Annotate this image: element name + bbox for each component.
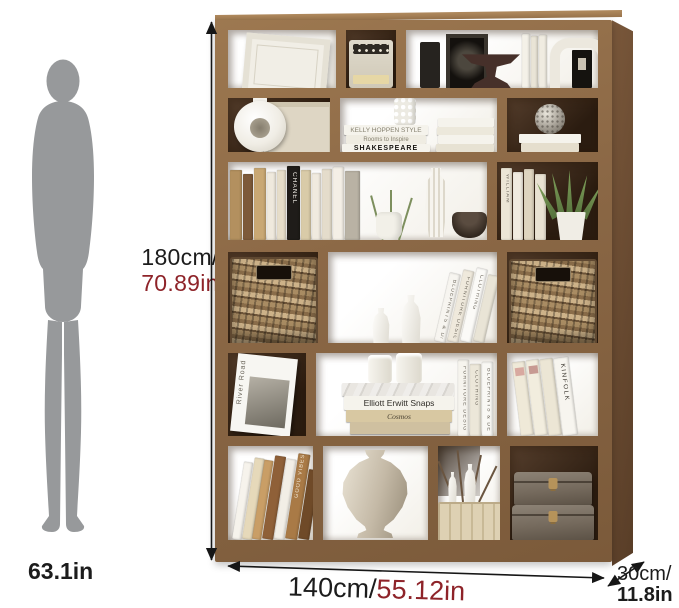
- dark-bowl: [452, 212, 487, 238]
- pillar-candle: [396, 353, 422, 383]
- book-furniture-title: FURNITURE DESIGN: [461, 366, 467, 431]
- book-spine: [301, 170, 311, 240]
- cubby-r5c2: Elliott Erwitt Snaps Cosmos FURNITURE DE…: [316, 353, 497, 436]
- aloe-pot: [555, 212, 587, 240]
- cubby-r3c2: WILLIAM: [497, 162, 598, 240]
- cubby-r3c1: CHANEL: [228, 162, 487, 240]
- shelf-side-panel: [612, 17, 633, 566]
- book-shakespeare: SHAKESPEARE: [342, 144, 430, 152]
- book-clothing: CLOTHING: [470, 364, 481, 436]
- book-label: [528, 365, 538, 374]
- book-spine: [312, 173, 321, 240]
- urn-vase: [339, 450, 411, 538]
- book-spine: [277, 170, 286, 240]
- width-cm-text: 140cm/: [288, 572, 377, 604]
- book-spine: [230, 170, 242, 240]
- cubby-r6c1: GOOD VIBES: [228, 446, 313, 540]
- plant-sprig: [368, 166, 412, 240]
- book-william-title: WILLIAM: [504, 174, 510, 204]
- box-clasp: [549, 478, 558, 489]
- cubby-r5c1: River Road: [228, 353, 306, 436]
- black-perfume-box: [572, 50, 592, 88]
- book-blueprints-title: BLUEPRINTS & DESIGNS: [485, 368, 491, 432]
- person-silhouette: [8, 54, 120, 554]
- cubby-r6c4: [510, 446, 598, 540]
- book-spine: [539, 35, 547, 88]
- width-in-text: 55.12in: [376, 574, 465, 606]
- book-spine: [524, 169, 534, 240]
- perfume-label: [578, 58, 586, 70]
- magazine-river-road: River Road: [230, 353, 298, 436]
- wooden-crate: [438, 502, 500, 540]
- book-cosmos: Cosmos: [346, 410, 452, 422]
- book-spine: [267, 172, 276, 240]
- book-clothing-title: CLOTHING: [473, 370, 479, 406]
- width-label: 140cm/55.12in: [288, 572, 466, 608]
- radio-dial: [353, 44, 389, 54]
- cubby-r1c2: [346, 30, 396, 88]
- wicker-basket-left: [230, 257, 318, 343]
- bookshelf: KELLY HOPPEN STYLE Rooms to Inspire SHAK…: [215, 15, 635, 570]
- cubby-r6c3: [438, 446, 500, 540]
- cubby-r2c2: KELLY HOPPEN STYLE Rooms to Inspire SHAK…: [340, 98, 497, 152]
- cubby-r1c3: [406, 30, 598, 88]
- sprig-vase: [376, 212, 402, 240]
- cubby-r4c2: BLUEPRINTS & DESIGNS FURNITURE DESIGN CL…: [328, 252, 497, 343]
- marble-book: [342, 383, 454, 396]
- cubby-r4c3: [507, 252, 598, 343]
- book-stack: [521, 143, 579, 152]
- tall-white-vase: [420, 168, 452, 240]
- book-spine: [531, 36, 538, 88]
- person-height-label: 63.1in: [28, 558, 93, 585]
- shelf-frame: KELLY HOPPEN STYLE Rooms to Inspire SHAK…: [215, 20, 612, 562]
- magazine-title: River Road: [236, 359, 248, 405]
- book-kinfolk-title: KINFOLK: [558, 363, 569, 402]
- product-dimension-image: 63.1in 180cm/ 70.89in: [0, 0, 679, 608]
- bottle-vase-small: [368, 308, 394, 343]
- book-spine: [254, 168, 266, 240]
- textured-sphere: [535, 104, 565, 134]
- book-furniture-design: FURNITURE DESIGN: [458, 360, 469, 436]
- picture-frame-mat: [253, 44, 318, 88]
- book-stack-white: [438, 118, 494, 127]
- radio-speaker-band: [353, 75, 389, 84]
- depth-label: 30cm/ 11.8in: [617, 564, 673, 606]
- book-label: [515, 367, 525, 376]
- book-stack-base: [350, 422, 450, 434]
- donut-vase: [234, 101, 286, 152]
- book-blueprints: BLUEPRINTS & DESIGNS: [482, 362, 493, 436]
- pillar-candle: [368, 355, 392, 383]
- book-spine: [522, 34, 530, 88]
- depth-in-text: 11.8in: [617, 585, 673, 606]
- book-stack-white: [438, 135, 494, 144]
- wicker-basket-right: [509, 259, 597, 343]
- bottle-vase-tall: [396, 295, 426, 343]
- cubby-r1c1: [228, 30, 336, 88]
- book-rooms-to-inspire: Rooms to Inspire: [346, 135, 426, 144]
- book-chanel-title: CHANEL: [290, 172, 297, 204]
- book-stack: [519, 134, 581, 143]
- book-spine: [513, 172, 523, 240]
- basket-label-slot: [256, 265, 292, 280]
- book-chanel: CHANEL: [287, 166, 300, 240]
- book-spine: [345, 171, 360, 240]
- basket-label-slot: [535, 267, 571, 282]
- book-stack-white: [436, 144, 494, 152]
- cubby-r2c3: [507, 98, 598, 152]
- donut-vase-hole: [250, 118, 270, 138]
- vintage-radio: [349, 40, 393, 88]
- depth-cm-text: 30cm/: [617, 564, 673, 585]
- book-elliott-erwitt: Elliott Erwitt Snaps: [344, 396, 454, 410]
- book-stack-white: [437, 127, 494, 135]
- book-kelly-hoppen: KELLY HOPPEN STYLE: [344, 125, 428, 135]
- aloe-plant: [545, 168, 595, 240]
- cubby-r6c2: [323, 446, 428, 540]
- book-spine: [333, 167, 344, 240]
- storage-box-top: [514, 472, 592, 505]
- picture-frame: [241, 32, 330, 88]
- dark-box: [420, 42, 440, 88]
- cubby-r4c1: [228, 252, 318, 343]
- cubby-r2c1: [228, 98, 330, 152]
- box-clasp: [549, 511, 558, 522]
- bubble-candle: [394, 98, 416, 125]
- book-spine: [243, 174, 253, 240]
- book-spine: [322, 169, 332, 240]
- storage-box-bottom: [512, 505, 594, 540]
- book-william: WILLIAM: [501, 168, 512, 240]
- cubby-r5c3: KINFOLK: [507, 353, 598, 436]
- magazine-photo: [245, 376, 290, 428]
